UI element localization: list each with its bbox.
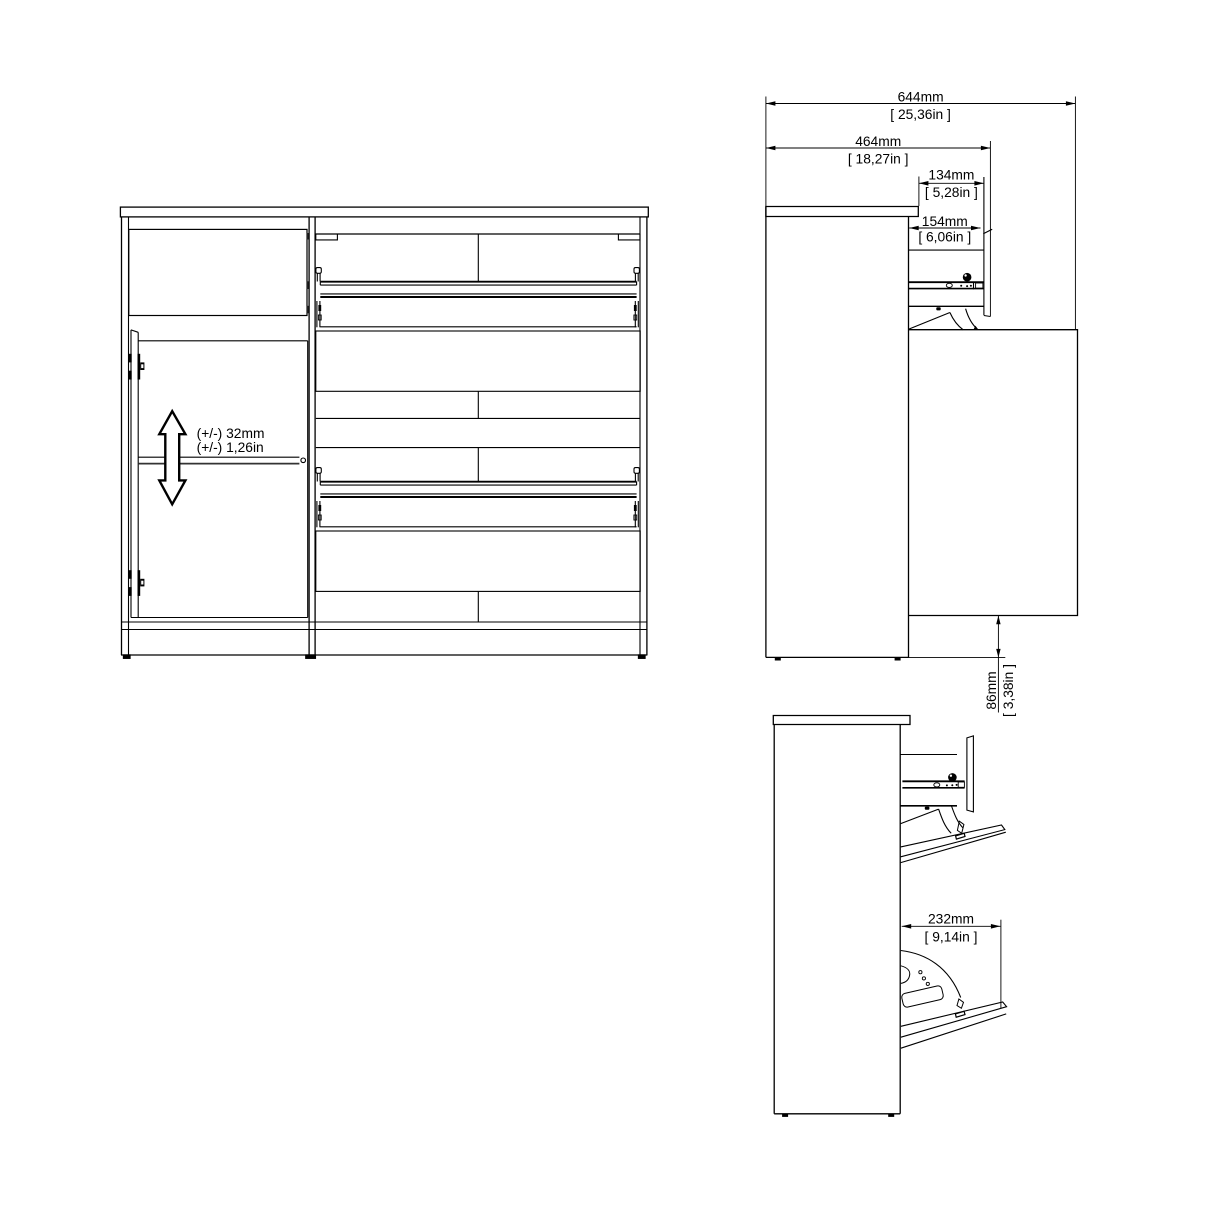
svg-text:[ 6,06in ]: [ 6,06in ] — [918, 230, 971, 245]
svg-text:[ 9,14in ]: [ 9,14in ] — [925, 930, 978, 945]
svg-text:644mm: 644mm — [898, 89, 944, 104]
svg-text:[ 25,36in ]: [ 25,36in ] — [890, 107, 951, 122]
svg-text:134mm: 134mm — [928, 167, 974, 182]
svg-text:[ 18,27in ]: [ 18,27in ] — [848, 151, 909, 166]
svg-text:464mm: 464mm — [855, 134, 901, 149]
svg-text:(+/-) 32mm: (+/-) 32mm — [197, 426, 265, 441]
svg-text:154mm: 154mm — [922, 214, 968, 229]
svg-text:(+/-) 1,26in: (+/-) 1,26in — [197, 440, 264, 455]
svg-text:[ 3,38in ]: [ 3,38in ] — [1001, 664, 1016, 717]
svg-text:[ 5,28in ]: [ 5,28in ] — [925, 185, 978, 200]
svg-text:86mm: 86mm — [984, 671, 999, 709]
svg-text:232mm: 232mm — [928, 911, 974, 926]
